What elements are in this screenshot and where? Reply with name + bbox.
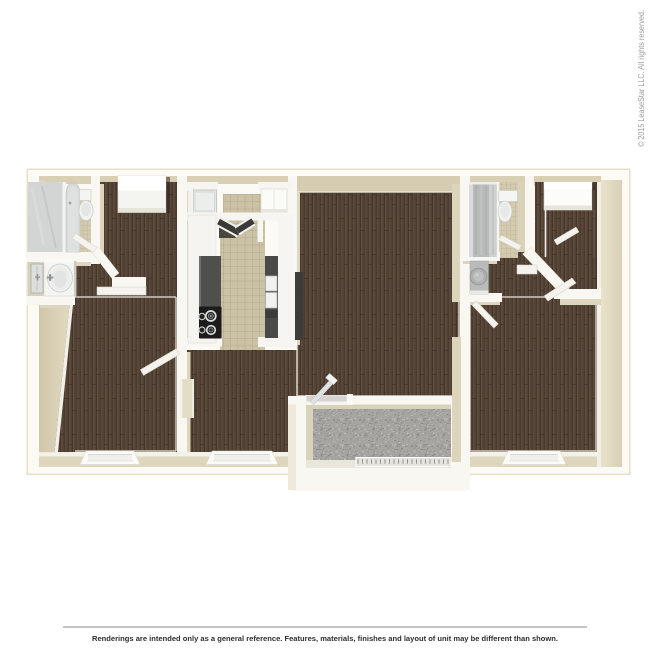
svg-text:Renderings are intended only a: Renderings are intended only as a genera… (92, 634, 558, 643)
svg-text:© 2015 LeaseStar LLC. All righ: © 2015 LeaseStar LLC. All rights reserve… (637, 10, 646, 147)
